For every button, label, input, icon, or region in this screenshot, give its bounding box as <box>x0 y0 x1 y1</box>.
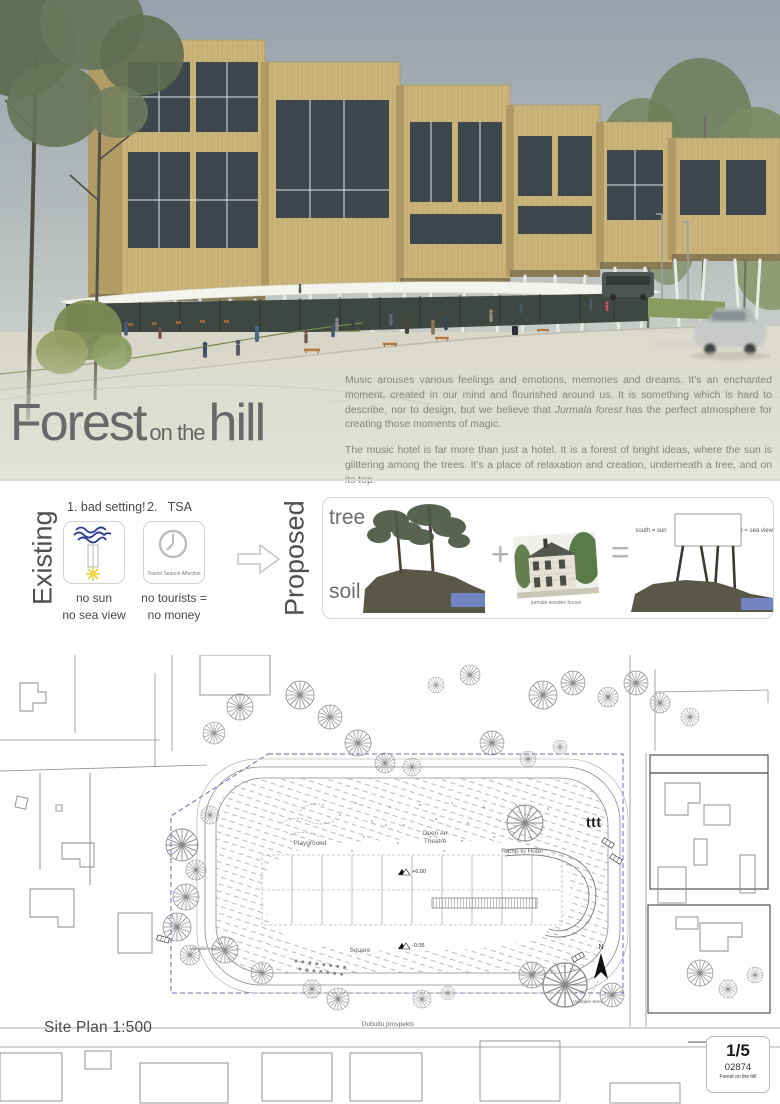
step1-label: 1. bad setting! <box>67 500 146 514</box>
street-name-label: Dubultu prospekts <box>362 1021 415 1028</box>
soil-label: soil <box>329 580 361 604</box>
square-label: Square <box>350 947 371 954</box>
hotel-footprint-grid <box>262 855 562 925</box>
intro-paragraph-1: Music arouses various feelings and emoti… <box>345 374 772 433</box>
building-block-icon <box>88 545 98 567</box>
playground-label: Playground <box>294 840 327 847</box>
bad-setting-card <box>63 521 125 584</box>
svg-text:+6.00: +6.00 <box>412 869 426 875</box>
context-roads <box>0 655 780 1047</box>
tree-soil-image <box>363 503 485 615</box>
step2-caption: no tourists = no money <box>130 590 218 625</box>
ramp-to-hotel-label: Ramp to Hotel <box>501 848 543 855</box>
hotel-box-icon <box>675 514 741 546</box>
project-name: Forest on the hill <box>707 1074 769 1080</box>
plus-sign: + <box>491 536 510 573</box>
sheet-number: 1/5 <box>707 1042 769 1061</box>
svg-text:-0.05: -0.05 <box>412 943 425 949</box>
section-divider <box>0 479 780 481</box>
title-part-hill: hill <box>209 393 265 453</box>
open-air-theatre-label-2: Theatre <box>424 838 447 845</box>
proposed-card: tree soil + <box>322 497 774 619</box>
ttt-mark: ttt <box>586 814 602 830</box>
page-title: Forest on the hill <box>10 393 264 453</box>
boardwalk <box>432 898 537 908</box>
jurmala-forest-emphasis: Jurmala forest <box>555 405 622 416</box>
site-plan-title: Site Plan 1:500 <box>44 1019 152 1037</box>
sea-waves-icon <box>74 528 111 543</box>
tsa-card-caption: Tourist Season Affective <box>144 571 204 577</box>
project-code: 02874 <box>707 1062 769 1073</box>
step2-label: 2. TSA <box>147 500 192 514</box>
valuable-trees-right-label: Valuable trees <box>573 999 604 1005</box>
jurmala-house-photo <box>513 531 599 599</box>
valuable-trees-left-label: valuable trees <box>190 946 220 952</box>
open-air-theatre-label-1: Open Air <box>422 830 448 837</box>
bad-setting-icon <box>64 522 123 582</box>
tsa-card: Tourist Season Affective <box>143 521 205 584</box>
intro-paragraph-2: The music hotel is far more than just a … <box>345 444 772 488</box>
step1-caption: no sun no sea view <box>52 590 136 625</box>
house-photo-caption: jurmala wooden house <box>509 600 603 606</box>
bus <box>602 272 654 300</box>
arrow-right-icon <box>236 541 282 577</box>
sheet-title-block: 1/5 02874 Forest on the hill <box>706 1036 770 1093</box>
svg-text:N: N <box>598 944 603 951</box>
title-part-onthe: on the <box>149 420 204 446</box>
presentation-board: Forest on the hill Music arouses various… <box>0 0 780 1104</box>
titleblock-leader-line <box>688 1041 706 1043</box>
tree-label: tree <box>329 506 365 530</box>
south-sun-label: south = sun <box>635 528 666 534</box>
clock-icon <box>144 522 203 566</box>
proposed-label: Proposed <box>278 500 312 616</box>
title-part-forest: Forest <box>10 393 145 453</box>
sun-icon <box>86 567 100 581</box>
hotel-concept-diagram: south = sun north = sea view <box>623 502 773 614</box>
